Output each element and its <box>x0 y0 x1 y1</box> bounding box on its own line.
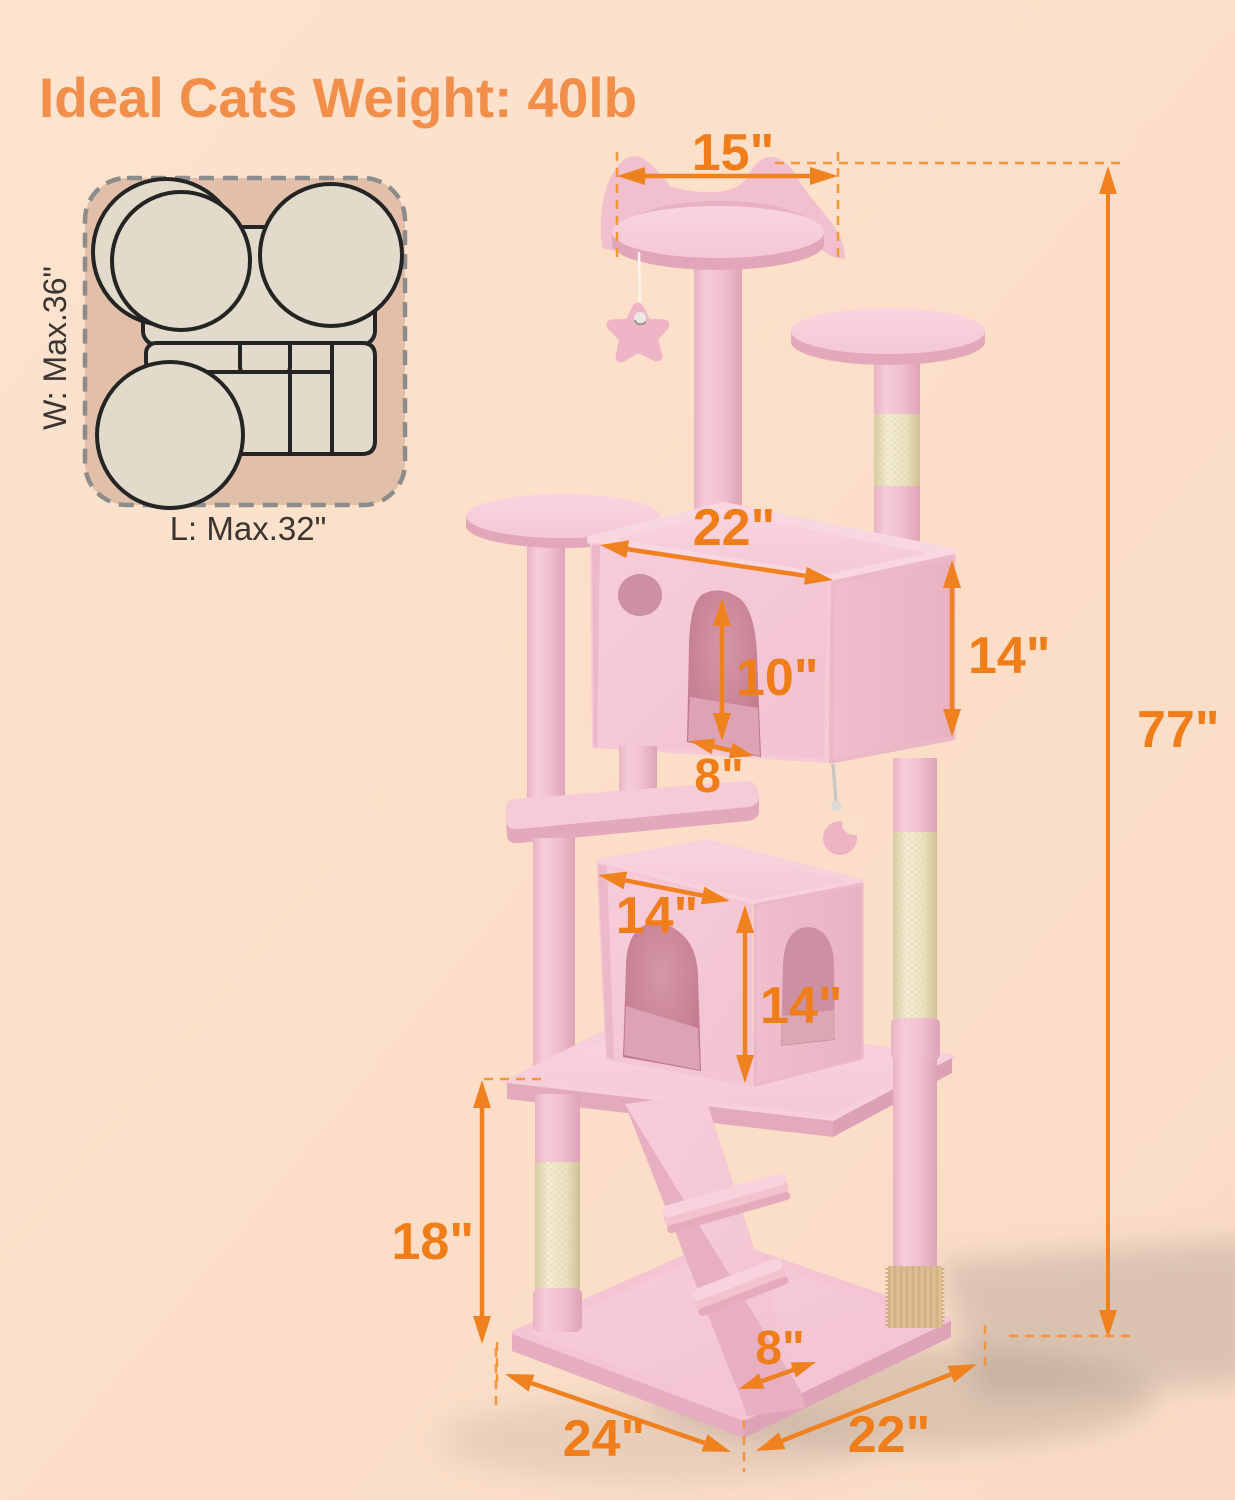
svg-text:8": 8" <box>694 750 743 803</box>
svg-text:L: Max.32": L: Max.32" <box>170 510 327 547</box>
svg-text:24": 24" <box>563 1410 646 1468</box>
svg-text:10": 10" <box>736 649 819 707</box>
svg-text:Ideal Cats Weight: 40lb: Ideal Cats Weight: 40lb <box>39 66 637 129</box>
svg-text:W: Max.36": W: Max.36" <box>37 266 73 430</box>
svg-text:22": 22" <box>848 1406 931 1464</box>
svg-text:8": 8" <box>755 1322 804 1375</box>
svg-text:77": 77" <box>1137 701 1220 759</box>
svg-text:14": 14" <box>616 887 699 945</box>
svg-text:14": 14" <box>760 977 843 1035</box>
svg-text:14": 14" <box>968 627 1051 685</box>
svg-text:15": 15" <box>692 124 775 182</box>
svg-text:22": 22" <box>693 499 776 557</box>
svg-text:18": 18" <box>392 1213 475 1271</box>
